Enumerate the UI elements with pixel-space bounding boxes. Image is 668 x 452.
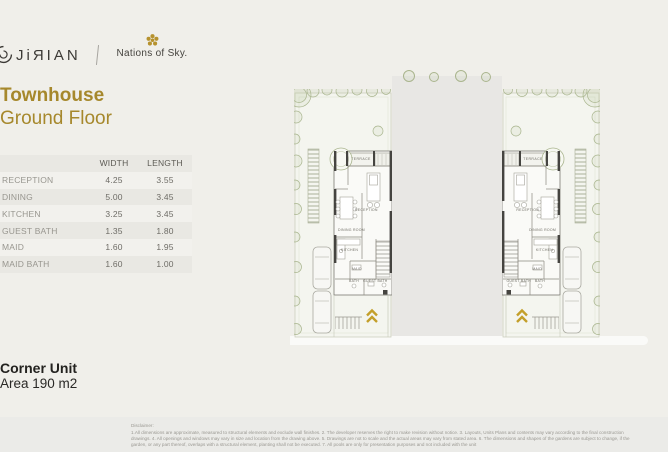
tree-icon [403,70,415,82]
room-label-kitchen: KITCHEN [536,248,553,252]
table-row: MAID 1.60 1.95 [0,239,192,256]
logo-divider [96,45,99,65]
table-row: DINING 5.00 3.45 [0,189,192,206]
swirl-logo-icon [0,45,13,64]
partner-logo: Nations of Sky. [112,34,192,59]
unit-plan-right: TERRACE RECEPTION DINING ROOM KITCHEN MA… [502,89,600,339]
length-cell: 3.45 [138,192,192,202]
width-cell: 4.25 [90,175,138,185]
unit-name: Corner Unit [0,360,77,376]
width-cell: 1.60 [90,259,138,269]
unit-area: Area 190 m2 [0,376,77,391]
page-subtitle: Ground Floor [0,107,112,130]
room-label-reception: RECEPTION [355,208,378,212]
length-cell: 1.80 [138,226,192,236]
unit-plan-left: TERRACE RECEPTION DINING ROOM KITCHEN MA… [294,89,392,339]
room-label-reception: RECEPTION [516,208,539,212]
width-cell: 1.35 [90,226,138,236]
dimensions-table: WIDTH LENGTH RECEPTION 4.25 3.55 DINING … [0,155,192,273]
brand-logo-text: JiЯIAN [16,47,81,64]
disclaimer-band: Disclaimer: 1.All dimensions are approxi… [0,417,668,452]
room-label-maid: MAID [352,267,362,271]
room-label-terrace: TERRACE [348,157,374,161]
road-strip [392,76,502,337]
room-label-terrace: TERRACE [520,157,546,161]
length-cell: 3.45 [138,209,192,219]
disclaimer: Disclaimer: 1.All dimensions are approxi… [131,423,643,448]
unit-plan-graphic [502,89,600,339]
flower-icon [146,34,159,47]
table-row: GUEST BATH 1.35 1.80 [0,222,192,239]
room-label-guest-bath: GUEST BATH [506,279,531,283]
entry-chevron-icon [365,307,379,325]
room-label-dining: DINING ROOM [529,228,556,232]
unit-plan-graphic [294,89,392,339]
tree-icon [429,72,439,82]
room-label-dining: DINING ROOM [338,228,365,232]
table-row: KITCHEN 3.25 3.45 [0,205,192,222]
room-label-bath: BATH [535,279,545,283]
tree-icon [481,72,491,82]
width-cell: 5.00 [90,192,138,202]
entry-chevron-icon [515,307,529,325]
width-cell: 1.60 [90,242,138,252]
page-title-block: Townhouse Ground Floor [0,84,112,130]
floor-plan: TERRACE RECEPTION DINING ROOM KITCHEN MA… [290,72,646,348]
room-name-cell: MAID BATH [0,259,90,269]
page-title: Townhouse [0,84,112,107]
table-header-row: WIDTH LENGTH [0,155,192,172]
room-name-cell: MAID [0,242,90,252]
room-label-kitchen: KITCHEN [341,248,358,252]
column-header-length: LENGTH [138,158,192,168]
table-row: MAID BATH 1.60 1.00 [0,256,192,273]
brochure-page: JiЯIAN Nations of Sky. Townhouse Ground … [0,0,668,452]
column-header-width: WIDTH [90,158,138,168]
disclaimer-text: 1.All dimensions are approximate, measur… [131,430,643,448]
room-name-cell: DINING [0,192,90,202]
room-label-bath: BATH [349,279,359,283]
room-name-cell: KITCHEN [0,209,90,219]
disclaimer-heading: Disclaimer: [131,423,643,428]
room-name-cell: GUEST BATH [0,226,90,236]
tree-icon [455,70,467,82]
width-cell: 3.25 [90,209,138,219]
room-label-guest-bath: GUEST BATH [363,279,388,283]
room-name-cell: RECEPTION [0,175,90,185]
length-cell: 3.55 [138,175,192,185]
length-cell: 1.00 [138,259,192,269]
partner-logo-text: Nations of Sky. [112,48,192,59]
room-label-maid: MAID [532,267,542,271]
table-row: RECEPTION 4.25 3.55 [0,172,192,189]
length-cell: 1.95 [138,242,192,252]
